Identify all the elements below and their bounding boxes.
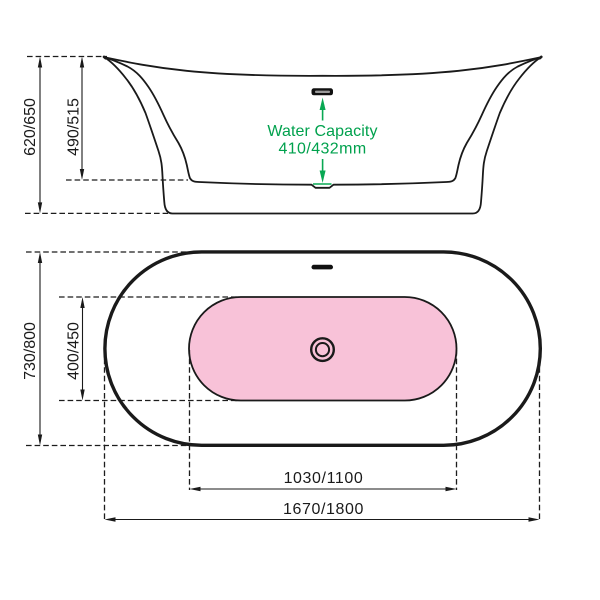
svg-text:620/650: 620/650 [22,98,39,156]
svg-text:Water Capacity: Water Capacity [267,123,377,140]
svg-text:490/515: 490/515 [66,98,83,156]
svg-text:1670/1800: 1670/1800 [283,501,364,518]
svg-text:730/800: 730/800 [22,322,39,380]
svg-text:400/450: 400/450 [66,322,83,380]
svg-text:410/432mm: 410/432mm [278,141,366,158]
svg-text:1030/1100: 1030/1100 [284,470,364,487]
